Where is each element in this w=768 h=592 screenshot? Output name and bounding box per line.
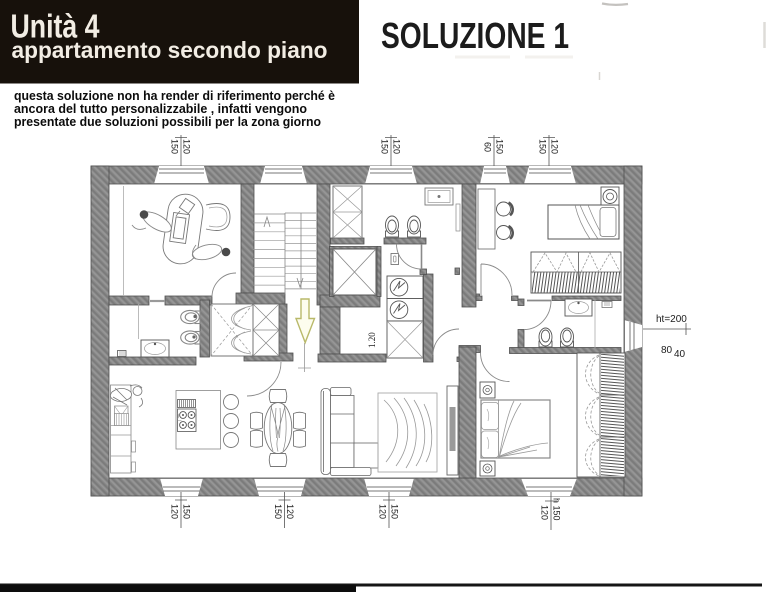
svg-text:150: 150 xyxy=(273,504,283,519)
svg-text:120: 120 xyxy=(378,504,388,519)
svg-text:120: 120 xyxy=(550,139,560,154)
svg-text:150: 150 xyxy=(495,139,505,154)
svg-text:ht=200: ht=200 xyxy=(656,314,687,325)
svg-text:120: 120 xyxy=(182,139,192,154)
svg-text:questa soluzione non ha render: questa soluzione non ha render di riferi… xyxy=(14,89,335,103)
svg-text:presentate due soluzioni possi: presentate due soluzioni possibili per l… xyxy=(14,115,321,129)
svg-text:1.20: 1.20 xyxy=(367,332,377,348)
svg-text:150: 150 xyxy=(170,139,180,154)
svg-text:120: 120 xyxy=(170,504,180,519)
svg-text:150: 150 xyxy=(380,139,390,154)
svg-text:40: 40 xyxy=(674,349,686,360)
svg-text:150: 150 xyxy=(390,504,400,519)
svg-text:120: 120 xyxy=(540,505,550,520)
svg-text:120: 120 xyxy=(285,504,295,519)
svg-text:60: 60 xyxy=(483,142,493,152)
svg-text:appartamento secondo piano: appartamento secondo piano xyxy=(12,37,328,63)
svg-text:120: 120 xyxy=(392,139,402,154)
svg-text:80: 80 xyxy=(661,345,673,356)
svg-text:150: 150 xyxy=(538,139,548,154)
svg-text:150: 150 xyxy=(182,504,192,519)
svg-text:ancora del tutto personalizzab: ancora del tutto personalizzabile , infa… xyxy=(14,102,307,116)
svg-text:SOLUZIONE 1: SOLUZIONE 1 xyxy=(381,15,569,56)
svg-text:h 150: h 150 xyxy=(552,498,562,521)
